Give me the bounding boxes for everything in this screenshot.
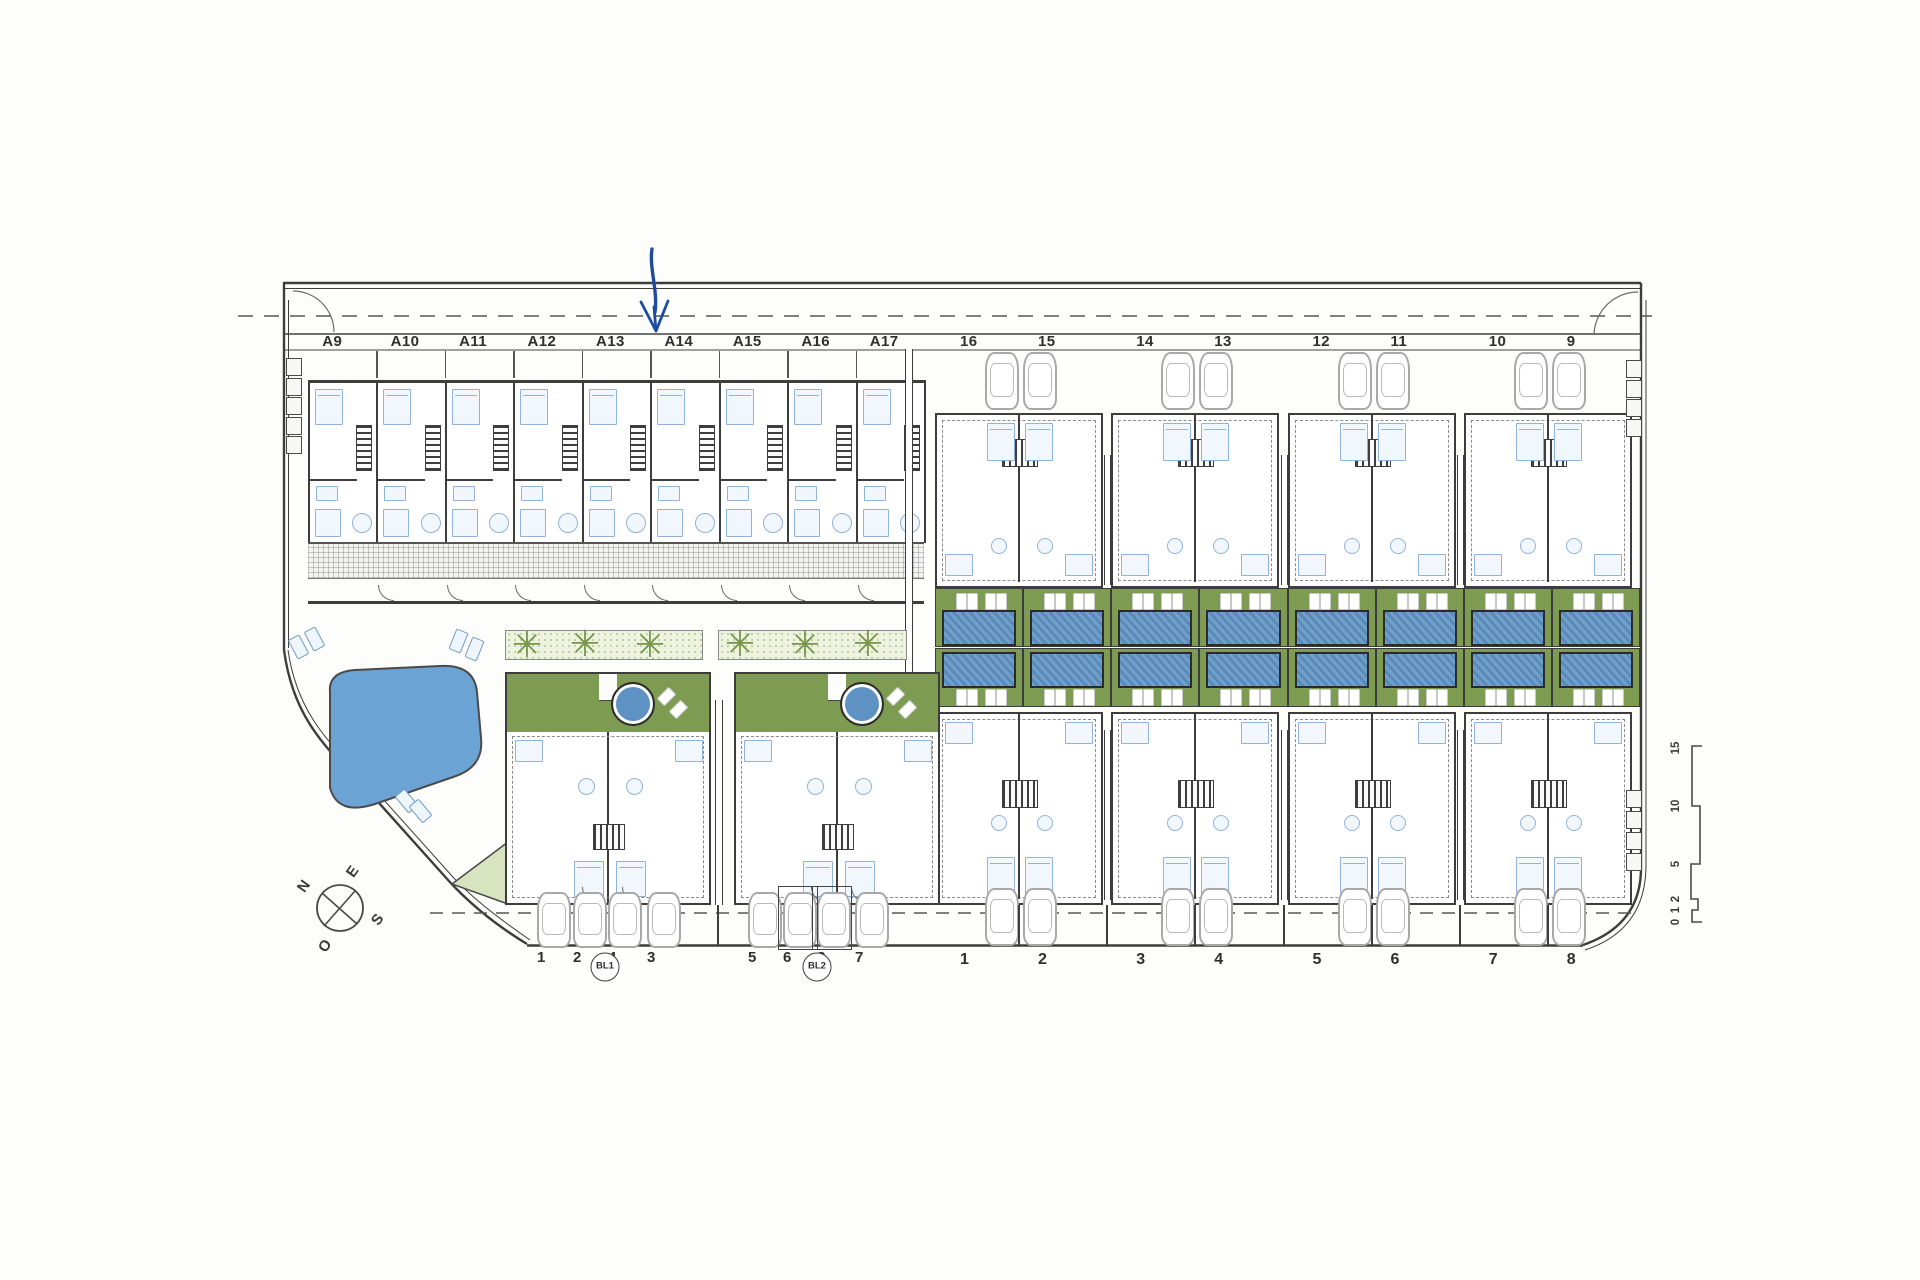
table-icon	[1566, 815, 1582, 831]
sun-lounger-icon	[1397, 593, 1408, 610]
driveway-wall	[717, 905, 719, 945]
stair-icon	[836, 425, 852, 471]
unit-label: 1	[960, 951, 1000, 968]
parked-car	[1552, 888, 1586, 946]
sofa-icon	[515, 740, 543, 762]
garden-pool-cell	[935, 648, 1023, 707]
townhouse-unit	[650, 380, 718, 543]
bathroom-icon	[384, 486, 406, 501]
bed-icon	[1201, 423, 1229, 461]
sun-lounger-icon	[1496, 593, 1507, 610]
parked-car	[1199, 352, 1233, 410]
sun-lounger-icon	[956, 593, 967, 610]
interior-wall	[310, 479, 357, 481]
block-gap-wall	[1457, 455, 1464, 585]
sun-lounger-icon	[1338, 689, 1349, 706]
site-plan-canvas: A9A10A11A12A13A14A15A16A1716115214313412…	[0, 0, 1920, 1280]
storage-box	[1626, 811, 1642, 829]
townhouse-unit	[787, 380, 855, 543]
lot-tick	[787, 351, 789, 378]
garden-pool-cell	[1111, 648, 1199, 707]
stair-icon	[1355, 780, 1391, 808]
parked-car	[573, 892, 607, 948]
unit-label: 2	[1038, 951, 1078, 968]
parked-car	[1552, 352, 1586, 410]
stair-icon	[822, 824, 854, 850]
bl1-block	[505, 672, 711, 905]
unit-label: A9	[322, 334, 362, 349]
parked-car	[537, 892, 571, 948]
table-icon	[1566, 538, 1582, 554]
scale-tick-label: 10	[1670, 794, 1682, 818]
pond	[330, 666, 481, 808]
entrance-arc-top-left	[293, 291, 334, 332]
scale-bar	[1691, 746, 1702, 922]
driveway-wall	[1371, 905, 1373, 945]
bathroom-icon	[795, 486, 817, 501]
sofa-icon	[1121, 554, 1149, 576]
unit-label: 16	[960, 334, 1000, 349]
table-icon	[1520, 815, 1536, 831]
parked-car	[1338, 888, 1372, 946]
table-icon	[1344, 538, 1360, 554]
unit-label: 5	[1313, 951, 1353, 968]
parked-car	[1338, 352, 1372, 410]
stair-icon	[1531, 780, 1567, 808]
sofa-icon	[1065, 554, 1093, 576]
storage-box	[1626, 399, 1642, 417]
garden-pool-cell	[1023, 648, 1111, 707]
townhouse-unit	[445, 380, 513, 543]
scale-tick-label: 5	[1670, 852, 1682, 876]
pool	[1206, 610, 1280, 646]
pool	[1471, 652, 1545, 688]
unit-label: A10	[391, 334, 431, 349]
pool	[1206, 652, 1280, 688]
sun-lounger-icon	[1055, 689, 1066, 706]
palm-tree-icon: ✳	[632, 627, 668, 663]
bed-icon	[383, 389, 411, 425]
sun-lounger-icon	[996, 593, 1007, 610]
sofa-icon	[452, 509, 478, 537]
sofa-icon	[1474, 554, 1502, 576]
garden-pool-cell	[1464, 648, 1552, 707]
table-icon	[489, 513, 509, 533]
interior-wall	[584, 479, 631, 481]
block-gap-wall	[1104, 730, 1111, 900]
sun-lounger-icon	[1073, 593, 1084, 610]
sofa-icon	[945, 722, 973, 744]
lot-tick	[650, 351, 652, 378]
sun-lounger-icon	[1044, 689, 1055, 706]
sofa-icon	[657, 509, 683, 537]
round-pool	[840, 682, 884, 726]
bathroom-icon	[590, 486, 612, 501]
pool	[1471, 610, 1545, 646]
garden-pool-cell	[1376, 588, 1464, 647]
bed-icon	[987, 423, 1015, 461]
sofa-icon	[1121, 722, 1149, 744]
interior-wall	[789, 479, 836, 481]
storage-box	[286, 436, 302, 454]
table-icon	[832, 513, 852, 533]
garden-pool-cell	[1023, 588, 1111, 647]
carport-outline	[812, 886, 852, 950]
sun-lounger-icon	[1143, 593, 1154, 610]
driveway-wall	[1106, 905, 1108, 945]
unit-label: 7	[855, 949, 885, 966]
garden-pool-cell	[1464, 588, 1552, 647]
palm-tree-icon: ✳	[850, 626, 886, 662]
storage-box	[1626, 380, 1642, 398]
sofa-icon	[1474, 722, 1502, 744]
lot-tick	[856, 351, 858, 378]
table-icon	[695, 513, 715, 533]
compass-cross	[322, 891, 357, 926]
sun-lounger-icon	[1485, 689, 1496, 706]
sofa-icon	[1241, 722, 1269, 744]
stair-icon	[425, 425, 441, 471]
duplex-block-lower	[1111, 712, 1279, 905]
stair-icon	[630, 425, 646, 471]
unit-label: 9	[1567, 334, 1607, 349]
stair-icon	[1002, 780, 1038, 808]
terrace-band	[308, 542, 924, 579]
garden-pool-cell	[1552, 648, 1640, 707]
duplex-block-lower	[1288, 712, 1456, 905]
block-tag: BL2	[803, 953, 832, 982]
sun-lounger-icon	[1073, 689, 1084, 706]
table-icon	[807, 778, 824, 795]
stair-icon	[593, 824, 625, 850]
table-icon	[578, 778, 595, 795]
parked-car	[855, 892, 889, 948]
pool	[1030, 652, 1104, 688]
lot-tick	[719, 351, 721, 378]
sun-lounger-icon	[1485, 593, 1496, 610]
round-pool	[611, 682, 655, 726]
table-icon	[855, 778, 872, 795]
bl2-block	[734, 672, 940, 905]
sun-lounger-icon	[1161, 593, 1172, 610]
sun-lounger-icon	[1525, 689, 1536, 706]
bed-icon	[1516, 423, 1544, 461]
parked-car	[1161, 352, 1195, 410]
sun-lounger-icon	[1613, 689, 1624, 706]
pool	[1295, 610, 1369, 646]
unit-label: 8	[1567, 951, 1607, 968]
bed-icon	[863, 389, 891, 425]
sofa-icon	[1594, 554, 1622, 576]
table-icon	[991, 815, 1007, 831]
scale-tick-label: 2	[1670, 887, 1682, 911]
sofa-icon	[520, 509, 546, 537]
table-icon	[626, 778, 643, 795]
duplex-block-lower	[935, 712, 1103, 905]
parked-car	[985, 888, 1019, 946]
sofa-icon	[1065, 722, 1093, 744]
unit-label: 13	[1214, 334, 1254, 349]
unit-label: A13	[596, 334, 636, 349]
pool	[1559, 610, 1633, 646]
unit-label: 10	[1489, 334, 1529, 349]
sofa-icon	[1594, 722, 1622, 744]
sun-lounger-icon	[1437, 689, 1448, 706]
sun-lounger-icon	[1426, 593, 1437, 610]
table-icon	[1390, 815, 1406, 831]
table-icon	[1037, 815, 1053, 831]
sofa-icon	[1418, 554, 1446, 576]
sun-lounger-icon	[1309, 689, 1320, 706]
parked-car	[1023, 352, 1057, 410]
interior-wall	[721, 479, 768, 481]
lot-tick	[376, 351, 378, 378]
lot-tick	[513, 351, 515, 378]
duplex-block-upper	[1464, 413, 1632, 588]
sun-lounger-icon	[1525, 593, 1536, 610]
parked-car	[1514, 888, 1548, 946]
duplex-block-upper	[1288, 413, 1456, 588]
scale-tick-label: 15	[1670, 736, 1682, 760]
sun-lounger-icon	[1349, 689, 1360, 706]
sun-lounger-icon	[1220, 689, 1231, 706]
storage-box	[1626, 419, 1642, 437]
parked-car	[985, 352, 1019, 410]
sun-lounger-icon	[1573, 593, 1584, 610]
stair-icon	[493, 425, 509, 471]
sun-lounger-icon	[1084, 593, 1095, 610]
unit-label: 4	[1214, 951, 1254, 968]
sofa-icon	[744, 740, 772, 762]
pool	[1559, 652, 1633, 688]
sun-lounger-icon	[1231, 689, 1242, 706]
unit-label: 5	[748, 949, 778, 966]
sofa-icon	[904, 740, 932, 762]
bathroom-icon	[316, 486, 338, 501]
palm-tree-icon: ✳	[722, 626, 758, 662]
duplex-block-lower	[1464, 712, 1632, 905]
sun-lounger-icon	[1260, 689, 1271, 706]
pool	[1030, 610, 1104, 646]
sun-lounger-icon	[967, 593, 978, 610]
bed-icon	[794, 389, 822, 425]
garden-pool-cell	[1552, 588, 1640, 647]
bed-icon	[315, 389, 343, 425]
garden-pool-cell	[1288, 648, 1376, 707]
garden-rear-wall	[308, 601, 924, 604]
unit-label: 15	[1038, 334, 1078, 349]
sun-lounger-icon	[985, 689, 996, 706]
sun-lounger-icon	[1231, 593, 1242, 610]
garden-pool-cell	[1199, 588, 1287, 647]
bathroom-icon	[727, 486, 749, 501]
townhouse-unit	[513, 380, 581, 543]
block-gap-wall	[1457, 730, 1464, 900]
townhouse-unit	[308, 380, 376, 543]
sun-lounger-icon	[956, 689, 967, 706]
stair-icon	[1178, 780, 1214, 808]
bathroom-icon	[658, 486, 680, 501]
stair-icon	[699, 425, 715, 471]
unit-label: A16	[801, 334, 841, 349]
sun-lounger-icon	[1338, 593, 1349, 610]
sun-lounger-icon	[1514, 593, 1525, 610]
sun-lounger-icon	[1044, 593, 1055, 610]
table-icon	[1390, 538, 1406, 554]
bed-icon	[1554, 423, 1582, 461]
storage-box	[1626, 790, 1642, 808]
sun-lounger-icon	[1172, 593, 1183, 610]
parked-car	[1161, 888, 1195, 946]
sun-lounger-icon	[1084, 689, 1095, 706]
storage-box	[286, 397, 302, 415]
bed-icon	[452, 389, 480, 425]
sun-lounger-icon	[1132, 689, 1143, 706]
sun-lounger-icon	[1408, 689, 1419, 706]
sun-lounger-icon	[1514, 689, 1525, 706]
bathroom-icon	[521, 486, 543, 501]
table-icon	[1344, 815, 1360, 831]
bed-icon	[726, 389, 754, 425]
unit-label: A11	[459, 334, 499, 349]
townhouse-unit	[719, 380, 787, 543]
pool	[1118, 652, 1192, 688]
parked-car	[1376, 352, 1410, 410]
garden-pool-cell	[1376, 648, 1464, 707]
storage-box	[1626, 853, 1642, 871]
sun-lounger-icon	[1613, 593, 1624, 610]
parked-car	[1023, 888, 1057, 946]
sofa-icon	[1241, 554, 1269, 576]
duplex-block-upper	[1111, 413, 1279, 588]
driveway-wall	[1194, 905, 1196, 945]
block-gap-wall	[1281, 730, 1288, 900]
parked-car	[748, 892, 782, 948]
pool	[1383, 610, 1457, 646]
unit-label: 6	[1391, 951, 1431, 968]
sun-lounger-icon	[1408, 593, 1419, 610]
pool	[942, 652, 1016, 688]
sofa-icon	[1298, 554, 1326, 576]
block-gap-wall	[715, 700, 723, 905]
driveway-wall	[1283, 905, 1285, 945]
bed-icon	[520, 389, 548, 425]
unit-label: 3	[1136, 951, 1176, 968]
bed-icon	[1340, 423, 1368, 461]
sun-lounger-icon	[1426, 689, 1437, 706]
sofa-icon	[675, 740, 703, 762]
sun-lounger-icon	[1496, 689, 1507, 706]
sun-lounger-icon	[1320, 593, 1331, 610]
sun-lounger-icon	[1132, 593, 1143, 610]
sun-lounger-icon	[1573, 689, 1584, 706]
garden-pool-cell	[1288, 588, 1376, 647]
green-wedge	[452, 842, 508, 904]
entrance-arc-top-right	[1594, 292, 1638, 334]
unit-label: A17	[870, 334, 910, 349]
table-icon	[763, 513, 783, 533]
palm-tree-icon: ✳	[567, 626, 603, 662]
unit-label: A15	[733, 334, 773, 349]
parked-car	[647, 892, 681, 948]
interior-wall	[378, 479, 425, 481]
sun-lounger-icon	[1584, 689, 1595, 706]
annotation-arrow-shaft	[651, 249, 655, 312]
lot-tick	[445, 351, 447, 378]
stair-icon	[562, 425, 578, 471]
pool	[1118, 610, 1192, 646]
parked-car	[1199, 888, 1233, 946]
sun-lounger-icon	[967, 689, 978, 706]
block-tag: BL1	[591, 953, 620, 982]
sun-lounger-icon	[1602, 689, 1613, 706]
townhouse-unit	[856, 380, 926, 543]
sun-lounger-icon	[1584, 593, 1595, 610]
parked-car	[1376, 888, 1410, 946]
sofa-icon	[383, 509, 409, 537]
table-icon	[421, 513, 441, 533]
sun-lounger-icon	[1397, 689, 1408, 706]
sun-lounger-icon	[1320, 689, 1331, 706]
garden-pool-cell	[1199, 648, 1287, 707]
stair-icon	[767, 425, 783, 471]
sun-lounger-icon	[1309, 593, 1320, 610]
table-icon	[1520, 538, 1536, 554]
driveway-wall	[1459, 905, 1461, 945]
sun-lounger-icon	[996, 689, 1007, 706]
sun-lounger-icon	[1602, 593, 1613, 610]
unit-label: A12	[528, 334, 568, 349]
sun-lounger-icon	[985, 593, 996, 610]
unit-label: 11	[1391, 334, 1431, 349]
sofa-icon	[726, 509, 752, 537]
bed-icon	[1025, 423, 1053, 461]
sun-lounger-icon	[1249, 689, 1260, 706]
sofa-icon	[794, 509, 820, 537]
sofa-icon	[945, 554, 973, 576]
sun-lounger-icon	[1437, 593, 1448, 610]
sun-lounger-icon	[1161, 689, 1172, 706]
sun-lounger-icon	[1055, 593, 1066, 610]
unit-label: 1	[537, 949, 567, 966]
sun-lounger-icon	[1349, 593, 1360, 610]
storage-box	[286, 417, 302, 435]
table-icon	[558, 513, 578, 533]
bed-icon	[657, 389, 685, 425]
block-gap-wall	[1104, 455, 1111, 585]
bed-icon	[589, 389, 617, 425]
unit-label: 12	[1313, 334, 1353, 349]
sun-lounger-icon	[1249, 593, 1260, 610]
interior-wall	[652, 479, 699, 481]
sofa-icon	[589, 509, 615, 537]
unit-label: A14	[664, 334, 704, 349]
townhouse-unit	[376, 380, 444, 543]
block-gap-wall	[1281, 455, 1288, 585]
storage-box	[1626, 360, 1642, 378]
table-icon	[626, 513, 646, 533]
table-icon	[991, 538, 1007, 554]
palm-tree-icon: ✳	[787, 627, 823, 663]
garden-pool-cell	[1111, 588, 1199, 647]
pool	[1295, 652, 1369, 688]
sofa-icon	[1298, 722, 1326, 744]
sofa-icon	[863, 509, 889, 537]
table-icon	[352, 513, 372, 533]
duplex-block-upper	[935, 413, 1103, 588]
townhouse-unit	[582, 380, 650, 543]
bathroom-icon	[453, 486, 475, 501]
